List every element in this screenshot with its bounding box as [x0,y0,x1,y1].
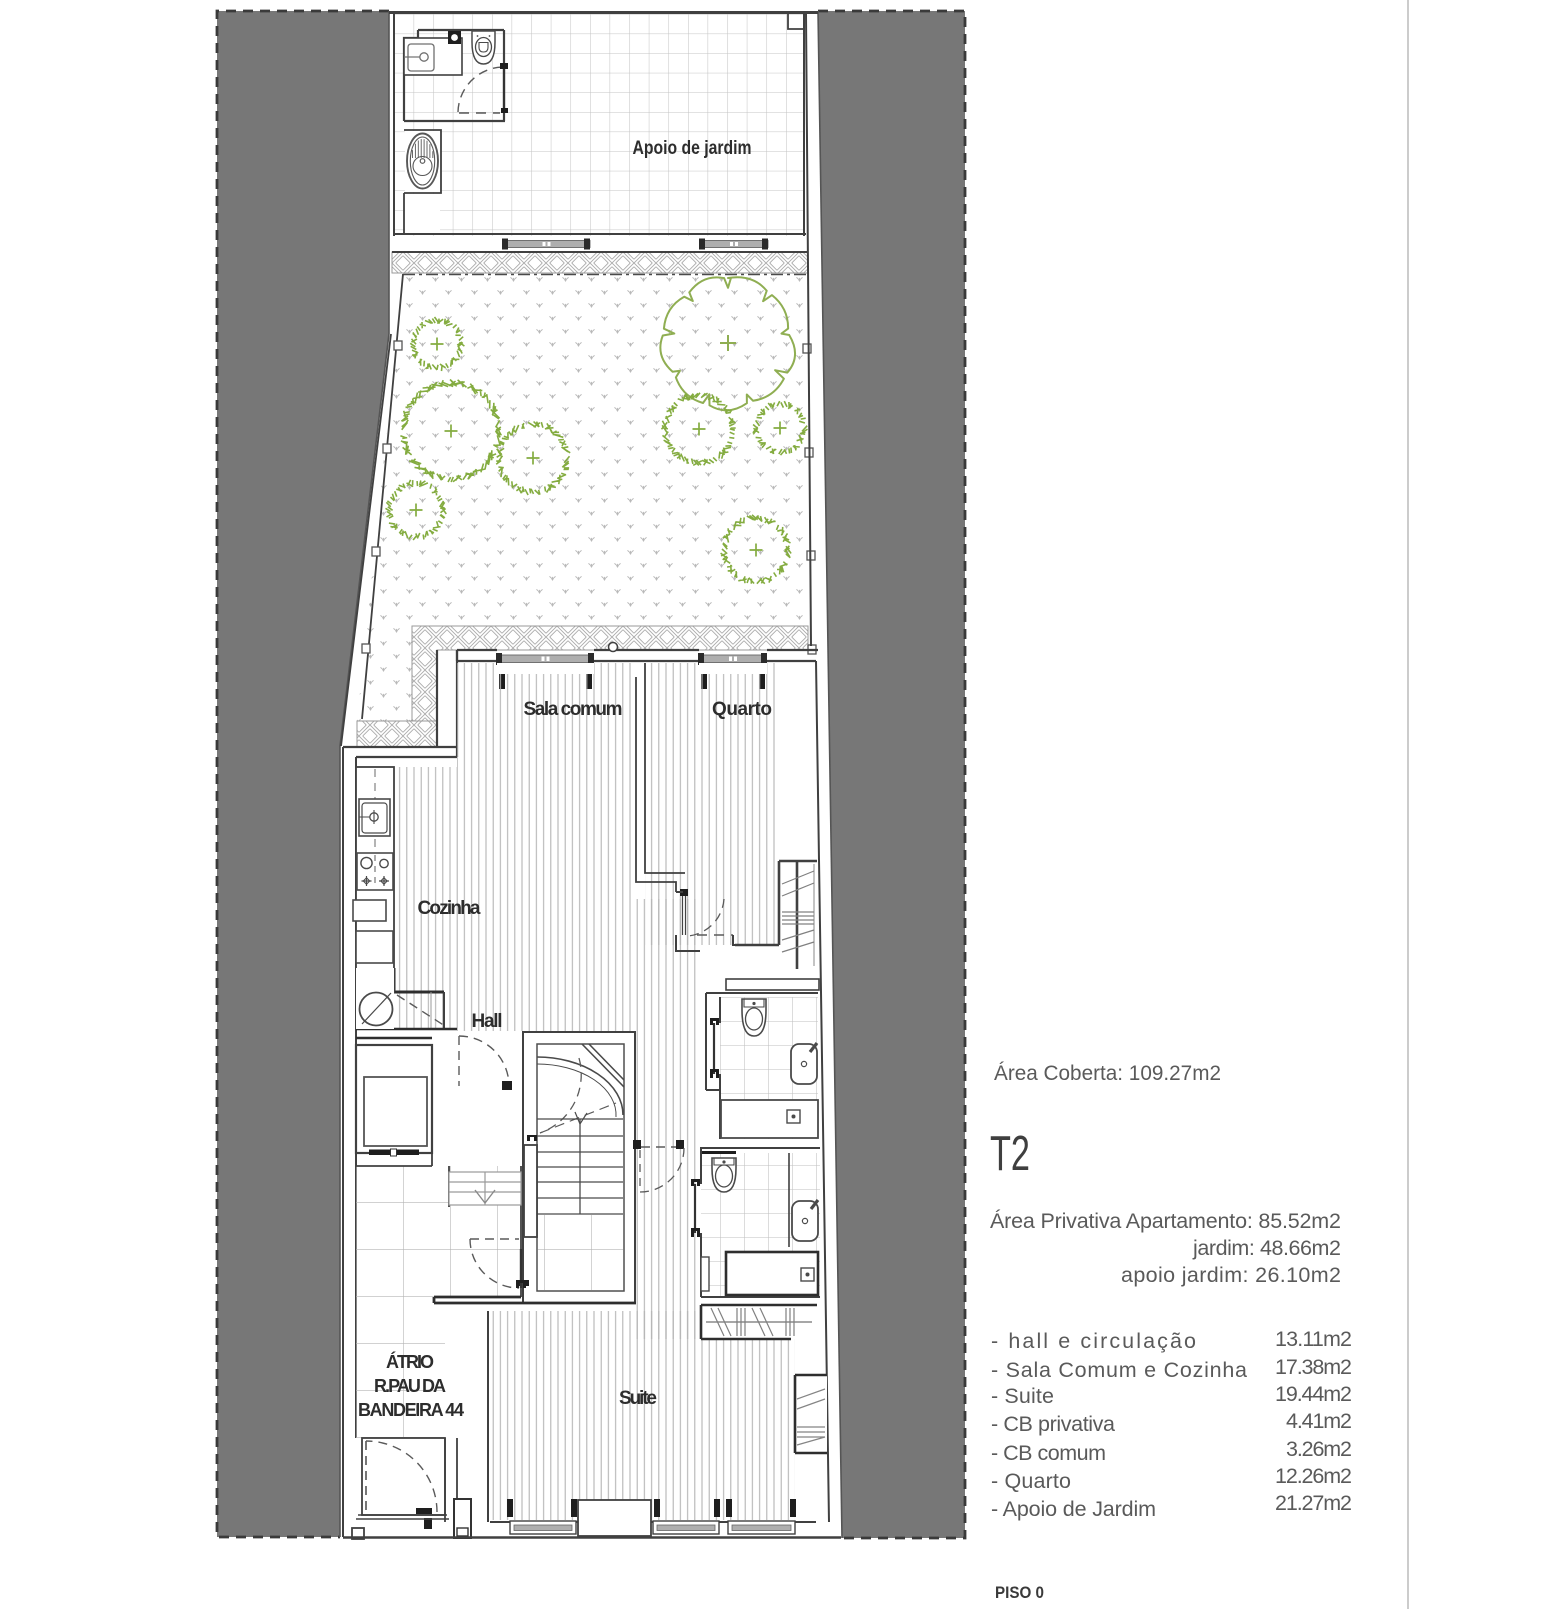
svg-text:PISO 0: PISO 0 [995,1583,1044,1602]
svg-text:R.PAU DA: R.PAU DA [374,1376,446,1396]
svg-text:- hall e circulação: - hall e circulação [991,1329,1196,1353]
svg-text:T2: T2 [990,1127,1030,1181]
svg-text:apoio jardim: 26.10m2: apoio jardim: 26.10m2 [1121,1263,1341,1287]
svg-text:Área Privativa Apartamento: 85: Área Privativa Apartamento: 85.52m2 [990,1208,1341,1233]
svg-text:BANDEIRA 44: BANDEIRA 44 [358,1400,464,1420]
svg-text:- Suite: - Suite [991,1384,1054,1408]
svg-text:3.26m2: 3.26m2 [1286,1437,1352,1461]
svg-text:- Quarto: - Quarto [991,1469,1071,1493]
svg-text:- CB privativa: - CB privativa [991,1412,1115,1436]
svg-text:Sala comum: Sala comum [524,699,623,720]
svg-text:13.11m2: 13.11m2 [1275,1327,1352,1351]
svg-text:Área Coberta: 109.27m2: Área Coberta: 109.27m2 [994,1060,1221,1085]
svg-text:Apoio de jardim: Apoio de jardim [633,138,752,159]
svg-text:Cozinha: Cozinha [418,898,481,919]
svg-text:- Apoio de Jardim: - Apoio de Jardim [991,1497,1156,1521]
svg-text:21.27m2: 21.27m2 [1275,1491,1352,1515]
svg-text:Suite: Suite [619,1388,657,1409]
svg-text:19.44m2: 19.44m2 [1275,1382,1352,1406]
svg-text:- CB comum: - CB comum [991,1441,1106,1465]
svg-text:4.41m2: 4.41m2 [1286,1409,1352,1433]
svg-text:ÁTRIO: ÁTRIO [386,1351,434,1372]
svg-text:17.38m2: 17.38m2 [1275,1355,1352,1379]
svg-text:Quarto: Quarto [712,699,772,720]
svg-text:- Sala Comum e Cozinha: - Sala Comum e Cozinha [991,1358,1247,1382]
svg-text:jardim: 48.66m2: jardim: 48.66m2 [1192,1236,1341,1260]
svg-text:12.26m2: 12.26m2 [1275,1464,1352,1488]
svg-text:Hall: Hall [472,1011,503,1032]
